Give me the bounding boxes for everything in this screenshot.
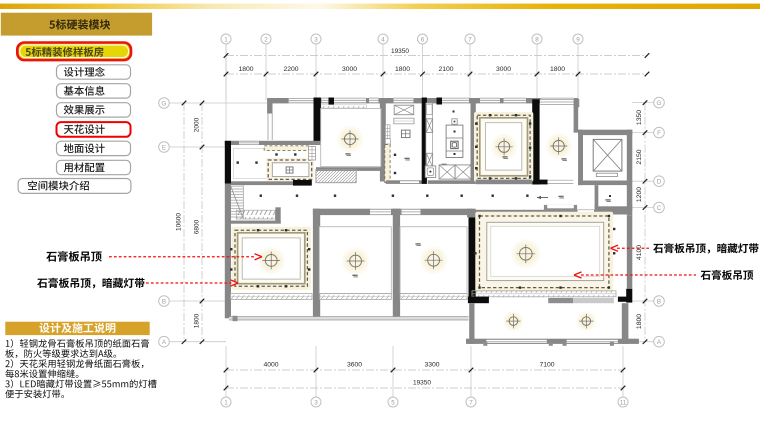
svg-text:4000: 4000 — [263, 362, 278, 369]
svg-text:1200: 1200 — [636, 187, 643, 202]
svg-text:E: E — [162, 144, 166, 151]
svg-text:1: 1 — [224, 399, 228, 406]
svg-text:8: 8 — [535, 36, 539, 43]
svg-text:7100: 7100 — [539, 362, 554, 369]
svg-text:1: 1 — [224, 36, 228, 43]
svg-text:C: C — [657, 205, 662, 212]
svg-text:1800: 1800 — [194, 313, 201, 328]
svg-text:4: 4 — [381, 36, 385, 43]
svg-text:19350: 19350 — [413, 380, 431, 387]
svg-text:1800: 1800 — [395, 66, 410, 73]
svg-text:2150: 2150 — [636, 149, 643, 164]
svg-text:G: G — [657, 100, 662, 107]
svg-text:1350: 1350 — [636, 110, 643, 125]
svg-text:G: G — [162, 100, 167, 107]
svg-text:3300: 3300 — [424, 362, 439, 369]
svg-text:3: 3 — [314, 36, 318, 43]
svg-text:3: 3 — [314, 399, 318, 406]
svg-text:4100: 4100 — [636, 245, 643, 260]
svg-text:6800: 6800 — [194, 219, 201, 234]
svg-text:3000: 3000 — [496, 66, 511, 73]
svg-text:10600: 10600 — [176, 213, 183, 231]
svg-text:1800: 1800 — [636, 314, 643, 329]
svg-text:F: F — [657, 130, 661, 137]
svg-text:2: 2 — [264, 36, 268, 43]
svg-text:5: 5 — [391, 399, 395, 406]
svg-text:B: B — [657, 298, 661, 305]
svg-text:9: 9 — [576, 36, 580, 43]
svg-text:1800: 1800 — [238, 66, 253, 73]
svg-text:7: 7 — [468, 36, 472, 43]
svg-text:B: B — [162, 298, 166, 305]
svg-text:2000: 2000 — [194, 117, 201, 132]
svg-text:11: 11 — [620, 399, 627, 406]
svg-text:2200: 2200 — [283, 66, 298, 73]
svg-text:D: D — [657, 179, 662, 186]
svg-text:6: 6 — [421, 36, 425, 43]
svg-text:1800: 1800 — [550, 66, 565, 73]
svg-text:19350: 19350 — [391, 48, 409, 55]
svg-text:3000: 3000 — [342, 66, 357, 73]
svg-text:2100: 2100 — [438, 66, 453, 73]
svg-text:7: 7 — [469, 399, 473, 406]
svg-text:3600: 3600 — [347, 362, 362, 369]
